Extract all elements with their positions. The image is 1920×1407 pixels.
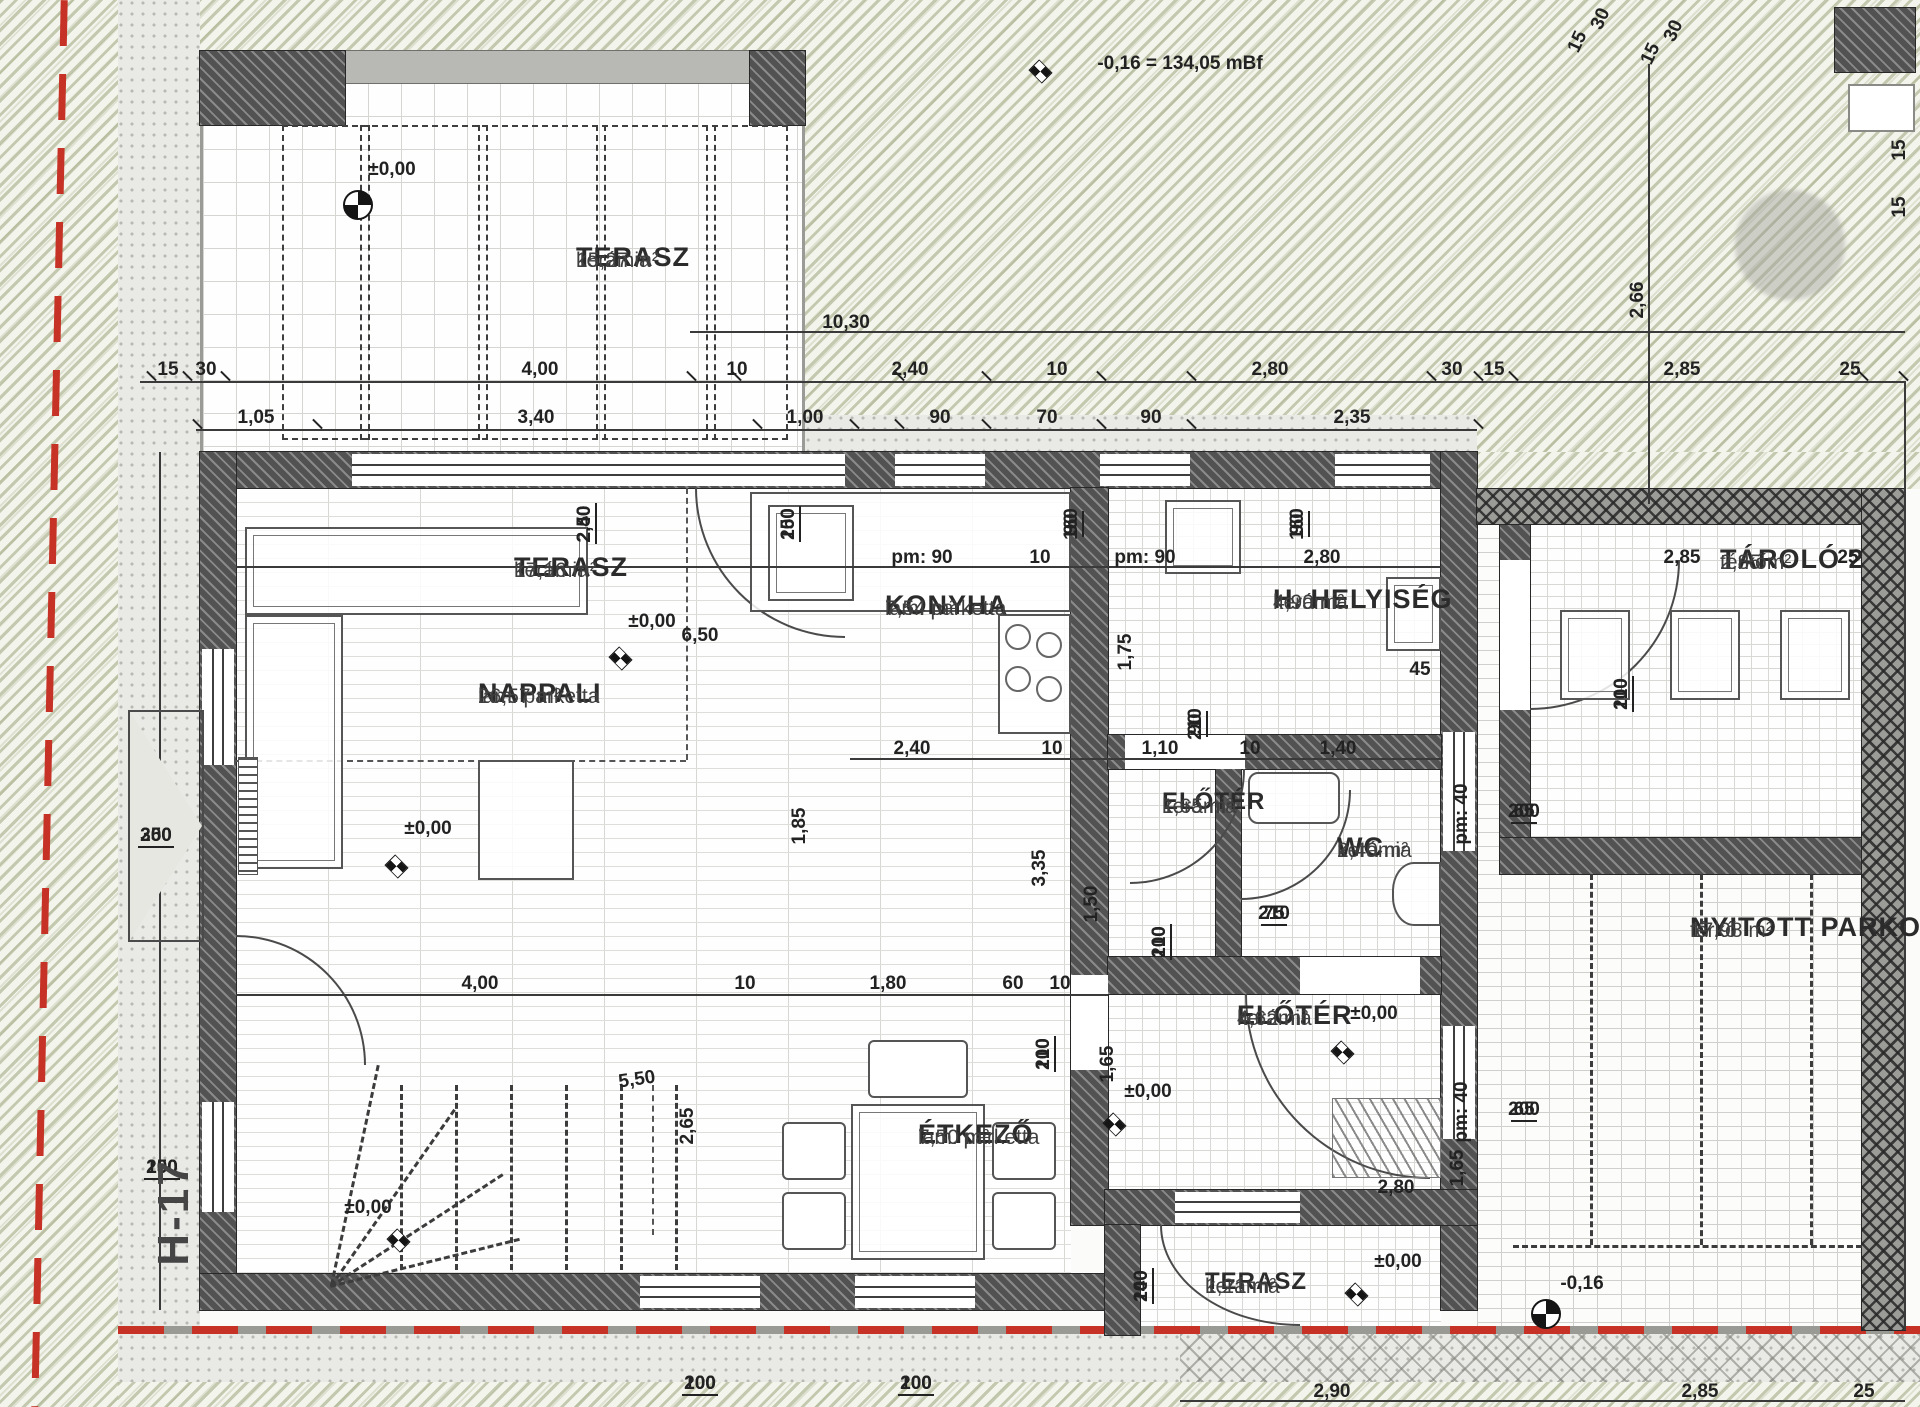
dimension-label: 1,80	[870, 974, 907, 994]
drawing-shape: 200	[1508, 802, 1540, 822]
dimension-label: 1,00	[787, 408, 824, 428]
dimension-label: 25	[1853, 1382, 1874, 1402]
dimension-label: 1,05	[238, 408, 275, 428]
dimension-label: 2,35	[1334, 408, 1371, 428]
drawing-shape: 250	[140, 826, 172, 846]
dimension-label: pm: 90	[1114, 548, 1175, 568]
drawing-shape: 160	[1062, 508, 1082, 540]
dimension-label: 10	[1029, 548, 1050, 568]
dimension-label: 70	[1036, 408, 1057, 428]
drawing-shape: 250	[779, 508, 799, 540]
dimension-label: 10	[1239, 739, 1260, 759]
dimension-label: 10,30	[822, 313, 870, 333]
dimension-label: H-17	[151, 1158, 197, 1265]
level-text: ±0,00	[404, 819, 451, 839]
dimension-label: 1,75	[1116, 634, 1136, 671]
floor-plan-canvas: TERASZkerámia15,27 m² TERASZkerámia17,16…	[0, 0, 1920, 1407]
drawing-shape: 240	[1132, 1270, 1152, 1302]
dimension-label: 10	[1041, 739, 1062, 759]
dimension-label: 2,85	[1664, 548, 1701, 568]
dimension-label: 1,65	[1098, 1046, 1118, 1083]
dimension-label: pm: 40	[1452, 1081, 1472, 1142]
level-text: ±0,00	[1124, 1082, 1171, 1102]
dimension-label: 45	[1409, 660, 1430, 680]
dimension-label: pm: 40	[1452, 783, 1472, 844]
drawing-shape: 2,50	[575, 506, 595, 543]
dimension-label: 30	[1587, 5, 1614, 33]
dimension-label: 15	[1890, 196, 1910, 217]
dimension-label: 1,85	[790, 808, 810, 845]
dimension-label: 1,10	[1142, 739, 1179, 759]
dimension-label: 2,80	[1252, 360, 1289, 380]
dimension-label: 30	[195, 360, 216, 380]
dimension-label: 6,50	[682, 626, 719, 646]
dimension-label: 2,85	[1682, 1382, 1719, 1402]
drawing-shape: 200	[1508, 1100, 1540, 1120]
dimension-label: 1,50	[1082, 886, 1102, 923]
dimension-label: 3,35	[1030, 850, 1050, 887]
level-text: ±0,00	[344, 1198, 391, 1218]
dimension-label: 1,65	[1448, 1150, 1468, 1187]
dimension-label: 25	[1839, 360, 1860, 380]
dimension-label: 2,80	[1304, 548, 1341, 568]
drawing-shape: 210	[1258, 904, 1290, 924]
drawing-shape: 210	[1034, 1038, 1054, 1070]
drawing-shape: 210	[1150, 926, 1170, 958]
drawing-shape: 200	[900, 1374, 932, 1394]
dimension-label: 60	[1002, 974, 1023, 994]
dimension-label: 30	[1441, 360, 1462, 380]
dimension-label: 10	[726, 360, 747, 380]
dimension-label: 2,85	[1664, 360, 1701, 380]
level-text: ±0,00	[628, 612, 675, 632]
dimension-label: 2,90	[1314, 1382, 1351, 1402]
level-text: ±0,00	[368, 160, 415, 180]
level-text: -0,16	[1560, 1274, 1603, 1294]
dimension-label: 3,40	[518, 408, 555, 428]
annotation-layer: -0,16 = 134,05 mBf10,3015304,00102,40102…	[0, 0, 1920, 1407]
dimension-label: 15	[157, 360, 178, 380]
dimension-label: 4,00	[522, 360, 559, 380]
drawing-shape: 210	[1186, 708, 1206, 740]
drawing-shape: 210	[1612, 678, 1632, 710]
level-text: ±0,00	[1374, 1252, 1421, 1272]
drawing-shape: 160	[1288, 508, 1308, 540]
dimension-label: 15	[1483, 360, 1504, 380]
dimension-label: 2,40	[894, 739, 931, 759]
dimension-label: 10	[1046, 360, 1067, 380]
dimension-label: 2,65	[678, 1108, 698, 1145]
dimension-label: 2,80	[1378, 1178, 1415, 1198]
dimension-label: 4,00	[462, 974, 499, 994]
level-text: ±0,00	[1350, 1004, 1397, 1024]
dimension-label: 25	[1837, 548, 1858, 568]
dimension-label: 15	[1637, 40, 1664, 68]
dimension-label: 15	[1890, 139, 1910, 160]
dimension-label: 90	[929, 408, 950, 428]
dimension-label: pm: 90	[891, 548, 952, 568]
dimension-label: 2,40	[892, 360, 929, 380]
dimension-label: 2,66	[1628, 282, 1648, 319]
drawing-shape: 200	[684, 1374, 716, 1394]
level-text: -0,16 = 134,05 mBf	[1097, 54, 1262, 74]
dimension-label: 15	[1564, 28, 1591, 56]
dimension-label: 10	[734, 974, 755, 994]
dimension-label: 5,50	[617, 1068, 656, 1093]
dimension-label: 10	[1049, 974, 1070, 994]
dimension-label: 1,40	[1320, 739, 1357, 759]
dimension-label: 90	[1140, 408, 1161, 428]
dimension-label: 30	[1660, 17, 1687, 45]
